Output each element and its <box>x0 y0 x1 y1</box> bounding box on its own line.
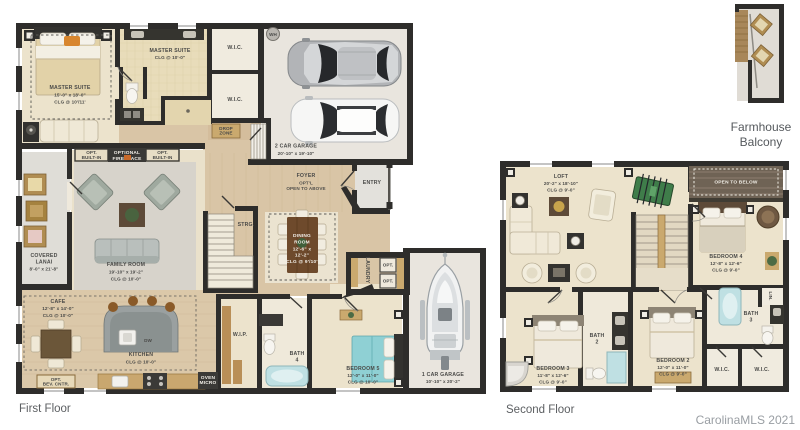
svg-text:ZONE: ZONE <box>219 131 232 136</box>
svg-text:CLG @ 10'-0": CLG @ 10'-0" <box>126 360 156 365</box>
svg-text:FOYER: FOYER <box>297 173 316 179</box>
svg-text:CLG @ 10'/11': CLG @ 10'/11' <box>54 100 85 105</box>
svg-text:KITCHEN: KITCHEN <box>129 352 154 358</box>
svg-text:ENTRY: ENTRY <box>363 180 382 186</box>
svg-text:BATH: BATH <box>290 351 305 357</box>
svg-text:1 CAR GARAGE: 1 CAR GARAGE <box>422 372 465 378</box>
svg-text:W.I.C.: W.I.C. <box>714 367 730 373</box>
svg-text:CLG @ 9'/10': CLG @ 9'/10' <box>286 259 318 265</box>
svg-text:BEV. CNTR.: BEV. CNTR. <box>43 382 70 387</box>
svg-text:W.I.C.: W.I.C. <box>754 367 770 373</box>
svg-text:CLG @ 9'-0": CLG @ 9'-0" <box>712 268 740 273</box>
svg-text:8'-0" x 21'-8": 8'-0" x 21'-8" <box>30 267 59 272</box>
svg-text:CLG @ 9'-0": CLG @ 9'-0" <box>547 188 575 193</box>
svg-text:OPT'L: OPT'L <box>299 181 313 186</box>
svg-text:11'-8" x 12'-6": 11'-8" x 12'-6" <box>537 373 568 378</box>
svg-text:LANAI: LANAI <box>36 260 53 266</box>
svg-text:CLG @ 10'-0": CLG @ 10'-0" <box>348 380 378 385</box>
svg-text:BATH: BATH <box>744 311 759 317</box>
svg-text:DW: DW <box>144 338 152 343</box>
svg-text:12'-0" x 11'-0": 12'-0" x 11'-0" <box>347 373 378 378</box>
svg-text:BATH: BATH <box>590 333 605 339</box>
svg-text:12'-0" x 11'-0": 12'-0" x 11'-0" <box>657 365 688 370</box>
svg-text:LAUNDRY: LAUNDRY <box>364 257 370 284</box>
svg-text:OPEN TO ABOVE: OPEN TO ABOVE <box>286 186 325 191</box>
svg-text:CLG @ 9'-0": CLG @ 9'-0" <box>659 372 687 377</box>
svg-text:12'-6" x: 12'-6" x <box>293 247 312 253</box>
svg-text:2: 2 <box>595 340 598 346</box>
svg-text:3: 3 <box>749 318 752 324</box>
svg-text:WH: WH <box>269 32 277 37</box>
svg-text:BEDROOM 3: BEDROOM 3 <box>536 366 569 372</box>
svg-text:BEDROOM 5: BEDROOM 5 <box>346 366 379 372</box>
svg-text:CLG @ 10'-0": CLG @ 10'-0" <box>111 277 141 282</box>
svg-text:OPEN TO BELOW: OPEN TO BELOW <box>714 180 758 186</box>
svg-text:STRG.: STRG. <box>238 222 255 228</box>
svg-text:W.I.C.: W.I.C. <box>227 45 243 51</box>
svg-text:MASTER SUITE: MASTER SUITE <box>49 85 90 91</box>
svg-text:FAMILY ROOM: FAMILY ROOM <box>107 262 145 268</box>
svg-text:10'-10" x 20'-2": 10'-10" x 20'-2" <box>426 379 460 384</box>
svg-text:2 CAR GARAGE: 2 CAR GARAGE <box>275 144 318 150</box>
svg-text:12'-8" x 12'-6": 12'-8" x 12'-6" <box>710 261 742 266</box>
svg-text:OPT.: OPT. <box>383 279 394 284</box>
svg-text:Farmhouse: Farmhouse <box>731 120 792 134</box>
svg-text:W.I.P.: W.I.P. <box>233 332 248 338</box>
svg-text:BEDROOM 4: BEDROOM 4 <box>709 254 742 260</box>
svg-text:CAFE: CAFE <box>51 299 66 305</box>
svg-text:First Floor: First Floor <box>19 403 71 415</box>
svg-text:CLG @ 9'-0": CLG @ 9'-0" <box>539 380 567 385</box>
svg-text:CarolinaMLS 2021: CarolinaMLS 2021 <box>696 413 796 427</box>
svg-text:19'-10" x 19'-2": 19'-10" x 19'-2" <box>109 270 143 275</box>
svg-text:BUILT-IN: BUILT-IN <box>82 155 102 160</box>
svg-text:MICRO: MICRO <box>200 380 217 386</box>
svg-text:DINING: DINING <box>293 233 311 239</box>
svg-text:ROOM: ROOM <box>294 240 310 246</box>
svg-text:12'-2": 12'-2" <box>295 253 309 259</box>
svg-text:4: 4 <box>295 358 298 364</box>
svg-text:COVERED: COVERED <box>30 253 57 259</box>
svg-text:Second Floor: Second Floor <box>506 404 575 416</box>
svg-text:BEDROOM 2: BEDROOM 2 <box>656 358 689 364</box>
svg-text:MASTER SUITE: MASTER SUITE <box>149 48 190 54</box>
svg-text:W.I.C.: W.I.C. <box>227 97 243 103</box>
svg-text:20'-10" x 19'-10": 20'-10" x 19'-10" <box>278 151 315 156</box>
svg-text:BUILT-IN: BUILT-IN <box>153 155 173 160</box>
svg-text:LIN.: LIN. <box>768 291 773 300</box>
svg-text:CLG @ 10'-0": CLG @ 10'-0" <box>155 55 185 60</box>
svg-text:15'-0" x 18'-0": 15'-0" x 18'-0" <box>54 93 86 98</box>
svg-text:OPT.: OPT. <box>383 263 394 268</box>
svg-text:12'-8" x 14'-0": 12'-8" x 14'-0" <box>42 306 74 311</box>
svg-text:20'-2" x 18'-10": 20'-2" x 18'-10" <box>544 181 578 186</box>
svg-text:CLG @ 10'-0": CLG @ 10'-0" <box>43 313 73 318</box>
svg-text:LOFT: LOFT <box>554 174 569 180</box>
svg-text:Balcony: Balcony <box>740 135 783 149</box>
